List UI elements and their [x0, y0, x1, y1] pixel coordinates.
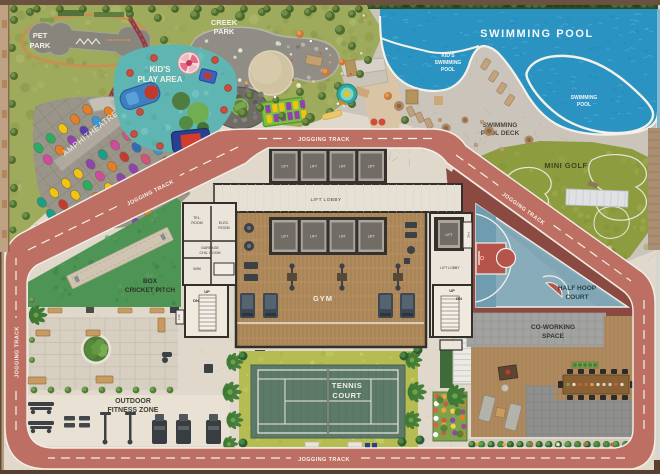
svg-text:W/M: W/M — [193, 267, 200, 271]
svg-text:PARK: PARK — [30, 41, 51, 50]
svg-text:LIFT: LIFT — [310, 235, 317, 239]
svg-text:LIFT: LIFT — [281, 235, 288, 239]
svg-text:LIFT LOBBY: LIFT LOBBY — [440, 266, 460, 270]
svg-text:ROOM: ROOM — [218, 226, 229, 230]
svg-text:LIFT: LIFT — [339, 165, 346, 169]
svg-text:MINI GOLF: MINI GOLF — [544, 161, 587, 170]
svg-text:POOL: POOL — [577, 102, 591, 108]
svg-text:SWIMMING: SWIMMING — [571, 95, 598, 101]
svg-text:FHC: FHC — [177, 313, 181, 320]
svg-text:SWIMMING: SWIMMING — [435, 60, 462, 66]
svg-text:GYM: GYM — [313, 294, 333, 303]
svg-text:COURT: COURT — [565, 294, 588, 301]
svg-text:LIFT: LIFT — [368, 165, 375, 169]
svg-text:CHU. ROOM: CHU. ROOM — [200, 251, 221, 255]
svg-text:LIFT: LIFT — [339, 235, 346, 239]
svg-text:COURT: COURT — [332, 391, 361, 400]
svg-text:FHC: FHC — [467, 232, 471, 239]
svg-text:TEL.: TEL. — [193, 216, 201, 220]
svg-text:JOGGING TRACK: JOGGING TRACK — [15, 326, 21, 378]
svg-text:TENNIS: TENNIS — [332, 381, 363, 390]
svg-text:UP: UP — [204, 289, 210, 294]
svg-text:LIFT: LIFT — [310, 165, 317, 169]
svg-text:KID'S: KID'S — [441, 53, 455, 59]
svg-text:GARBAGE: GARBAGE — [201, 246, 219, 250]
svg-text:POOL: POOL — [441, 67, 455, 73]
svg-text:HALF HOOP: HALF HOOP — [558, 285, 597, 292]
svg-text:JOGGING TRACK: JOGGING TRACK — [298, 457, 350, 463]
svg-text:DN: DN — [193, 298, 199, 303]
svg-text:LIFT LOBBY: LIFT LOBBY — [310, 197, 342, 203]
svg-text:LIFT: LIFT — [368, 235, 375, 239]
svg-text:PARK: PARK — [214, 27, 235, 36]
svg-text:JOGGING TRACK: JOGGING TRACK — [298, 137, 350, 143]
svg-text:SPACE: SPACE — [542, 333, 565, 340]
svg-text:LIFT: LIFT — [446, 233, 453, 237]
svg-text:CREEK: CREEK — [211, 18, 238, 27]
svg-text:OUTDOOR: OUTDOOR — [115, 398, 151, 405]
svg-text:CRICKET PITCH: CRICKET PITCH — [125, 287, 176, 294]
svg-text:BOX: BOX — [143, 278, 158, 285]
svg-text:ELEC.: ELEC. — [219, 221, 229, 225]
svg-text:UP: UP — [449, 288, 455, 293]
svg-text:PET: PET — [33, 31, 48, 40]
svg-text:ROOM: ROOM — [191, 221, 202, 225]
svg-text:KID'S: KID'S — [149, 65, 171, 74]
svg-text:DN: DN — [456, 296, 462, 301]
svg-text:CO-WORKING: CO-WORKING — [531, 324, 575, 331]
svg-text:PLAY AREA: PLAY AREA — [137, 75, 182, 84]
svg-text:LIFT: LIFT — [281, 165, 288, 169]
svg-text:SWIMMING POOL: SWIMMING POOL — [480, 28, 594, 40]
